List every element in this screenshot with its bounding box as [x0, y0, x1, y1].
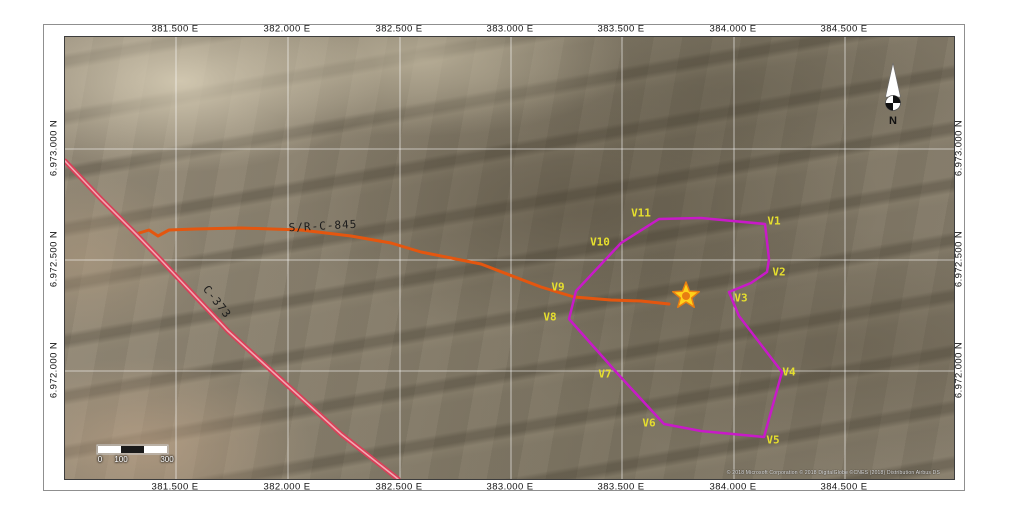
- boundary-polygon-line: [569, 218, 782, 437]
- scale-bar: [97, 445, 168, 454]
- roads: [65, 161, 669, 479]
- road-line-C-373: [65, 161, 398, 479]
- claim-boundary-polygon: [569, 218, 782, 437]
- axis-label-left: 6.972.500 N: [49, 231, 60, 287]
- axis-label-top: 381.500 E: [152, 24, 199, 35]
- map-overlay: [65, 37, 954, 479]
- axis-label-bottom: 383.000 E: [487, 482, 534, 493]
- vertex-label-V2: V2: [772, 266, 785, 279]
- axis-label-top: 384.000 E: [710, 24, 757, 35]
- axis-label-top: 382.500 E: [376, 24, 423, 35]
- scale-bar-tick-label: 0: [98, 455, 102, 464]
- scale-bar-segment: [144, 446, 167, 453]
- axis-label-bottom: 384.500 E: [821, 482, 868, 493]
- map-figure: 381.500 E382.000 E382.500 E383.000 E383.…: [0, 0, 1024, 512]
- scale-bar-tick-label: 300: [160, 455, 173, 464]
- north-arrow-icon: [886, 63, 901, 111]
- axis-label-top: 384.500 E: [821, 24, 868, 35]
- vertex-label-V7: V7: [598, 368, 611, 381]
- vertex-label-V9: V9: [551, 281, 564, 294]
- axis-label-bottom: 384.000 E: [710, 482, 757, 493]
- axis-label-bottom: 381.500 E: [152, 482, 199, 493]
- coordinate-grid: [65, 37, 954, 479]
- axis-label-bottom: 382.000 E: [264, 482, 311, 493]
- vertex-label-V11: V11: [631, 207, 651, 220]
- vertex-label-V1: V1: [767, 215, 780, 228]
- axis-label-right: 6.972.000 N: [954, 342, 965, 398]
- copyright-text: © 2018 Microsoft Corporation © 2018 Digi…: [727, 470, 940, 476]
- scale-bar-segment: [121, 446, 144, 453]
- axis-label-right: 6.972.500 N: [954, 231, 965, 287]
- scale-bar-segment: [98, 446, 121, 453]
- axis-label-left: 6.973.000 N: [49, 120, 60, 176]
- vertex-label-V4: V4: [782, 366, 795, 379]
- axis-label-top: 382.000 E: [264, 24, 311, 35]
- road-centerline-C-373: [65, 161, 398, 479]
- north-label: N: [889, 115, 897, 127]
- vertex-label-V6: V6: [642, 417, 655, 430]
- map-canvas: S/R-C-845C-373V1V2V3V4V5V6V7V8V9V10V1101…: [64, 36, 955, 480]
- axis-label-bottom: 382.500 E: [376, 482, 423, 493]
- axis-label-top: 383.000 E: [487, 24, 534, 35]
- scale-bar-tick-label: 100: [114, 455, 127, 464]
- axis-label-top: 383.500 E: [598, 24, 645, 35]
- vertex-label-V3: V3: [734, 292, 747, 305]
- axis-label-right: 6.973.000 N: [954, 120, 965, 176]
- vertex-label-V10: V10: [590, 236, 610, 249]
- vertex-label-V5: V5: [766, 434, 779, 447]
- vertex-label-V8: V8: [543, 311, 556, 324]
- star-center-dot: [682, 292, 690, 300]
- axis-label-left: 6.972.000 N: [49, 342, 60, 398]
- location-star-icon: [673, 282, 700, 307]
- axis-label-bottom: 383.500 E: [598, 482, 645, 493]
